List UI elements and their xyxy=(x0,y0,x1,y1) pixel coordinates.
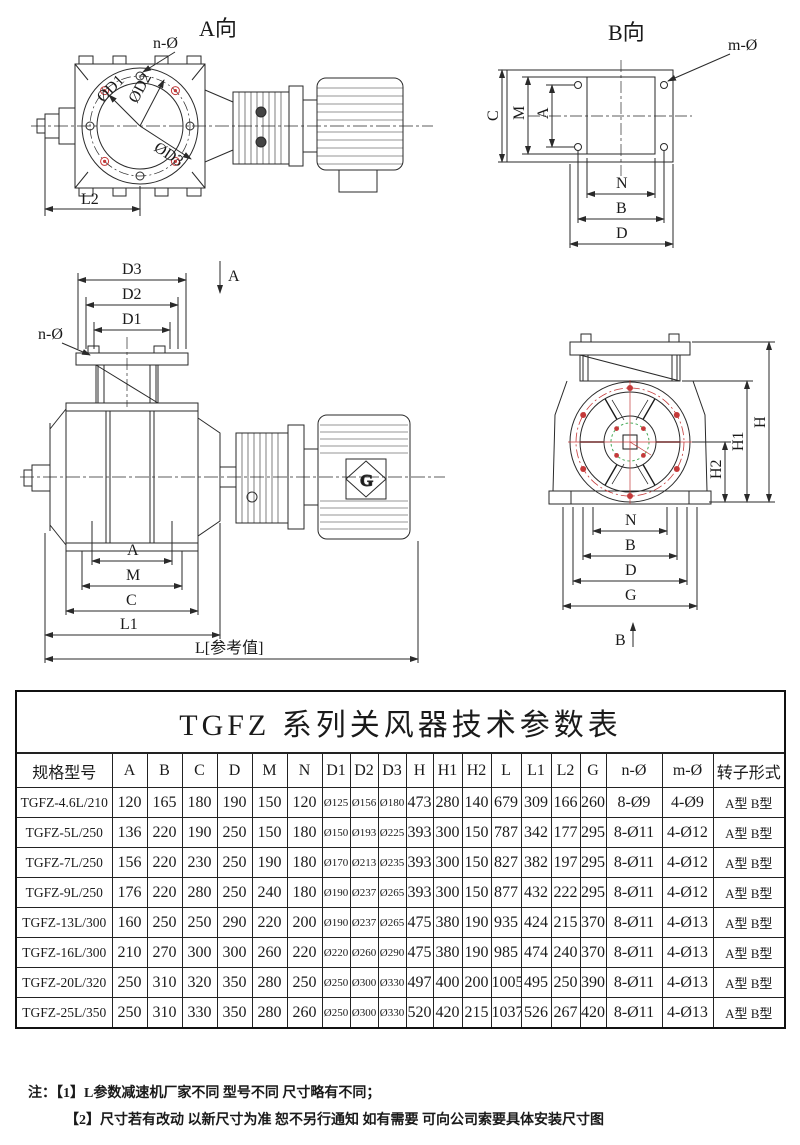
value-cell: 300 xyxy=(217,938,252,968)
table-row: TGFZ-20L/320250310320350280250Ø250Ø300Ø3… xyxy=(17,968,784,998)
parameter-table: TGFZ 系列关风器技术参数表 规格型号ABCDMND1D2D3HH1H2LL1… xyxy=(15,690,786,1029)
value-cell: 495 xyxy=(521,968,551,998)
value-cell: 230 xyxy=(182,848,217,878)
value-cell: 250 xyxy=(112,968,147,998)
dim-od1-label: ØD1 xyxy=(94,72,128,106)
value-cell: 475 xyxy=(406,938,433,968)
dim-l2-label: L2 xyxy=(81,191,99,208)
column-header: m-Ø xyxy=(662,754,713,788)
view-a-drawing: ØD1 ØD2 ØD3 n-Ø L2 A向 xyxy=(25,8,440,248)
column-header: B xyxy=(147,754,182,788)
dim-m-label-front: M xyxy=(126,567,140,584)
value-cell: 787 xyxy=(491,818,521,848)
value-cell: 8-Ø11 xyxy=(606,908,662,938)
front-view-drawing: A D3 D2 D1 n-Ø xyxy=(20,253,450,663)
value-cell: 4-Ø13 xyxy=(662,968,713,998)
n-hole-callout-front: n-Ø xyxy=(38,326,90,355)
value-cell: Ø235 xyxy=(378,848,406,878)
section-arrow-a: A xyxy=(220,261,240,293)
value-cell: Ø225 xyxy=(378,818,406,848)
value-cell: 220 xyxy=(287,938,322,968)
note-prefix: 注： xyxy=(28,1086,56,1101)
column-header: 规格型号 xyxy=(17,754,112,788)
value-cell: 240 xyxy=(252,878,287,908)
dim-l-label: L[参考值] xyxy=(195,639,263,657)
value-cell: A型 B型 xyxy=(713,788,784,818)
value-cell: 250 xyxy=(217,878,252,908)
value-cell: Ø190 xyxy=(322,908,350,938)
value-cell: A型 B型 xyxy=(713,878,784,908)
dimension-h: H xyxy=(692,342,775,502)
value-cell: 165 xyxy=(147,788,182,818)
dim-h1-label: H1 xyxy=(730,431,747,451)
value-cell: 350 xyxy=(217,968,252,998)
value-cell: Ø300 xyxy=(350,968,378,998)
value-cell: Ø330 xyxy=(378,998,406,1028)
n-hole-callout: n-Ø xyxy=(143,35,178,72)
value-cell: 150 xyxy=(252,788,287,818)
value-cell: 300 xyxy=(182,938,217,968)
dim-m-label: M xyxy=(511,106,528,120)
value-cell: 180 xyxy=(287,818,322,848)
column-header: C xyxy=(182,754,217,788)
value-cell: 8-Ø11 xyxy=(606,998,662,1028)
value-cell: 342 xyxy=(521,818,551,848)
parameter-grid: 规格型号ABCDMND1D2D3HH1H2LL1L2Gn-Øm-Ø转子形式 TG… xyxy=(17,753,784,1027)
value-cell: 220 xyxy=(147,878,182,908)
column-header: H2 xyxy=(462,754,491,788)
value-cell: 190 xyxy=(182,818,217,848)
column-header: H1 xyxy=(433,754,462,788)
value-cell: 985 xyxy=(491,938,521,968)
value-cell: Ø250 xyxy=(322,998,350,1028)
value-cell: Ø180 xyxy=(378,788,406,818)
dim-h-label: H xyxy=(752,416,769,428)
value-cell: Ø330 xyxy=(378,968,406,998)
value-cell: 177 xyxy=(551,818,580,848)
notes-block: 注：【1】L参数减速机厂家不同 型号不同 尺寸略有不同； 【2】尺寸若有改动 以… xyxy=(28,1080,768,1134)
note-line-2: 【2】尺寸若有改动 以新尺寸为准 恕不另行通知 如有需要 可向公司索要具体安装尺… xyxy=(28,1107,768,1134)
column-header: L2 xyxy=(551,754,580,788)
value-cell: A型 B型 xyxy=(713,938,784,968)
table-row: TGFZ-4.6L/210120165180190150120Ø125Ø156Ø… xyxy=(17,788,784,818)
value-cell: 140 xyxy=(462,788,491,818)
value-cell: 150 xyxy=(252,818,287,848)
value-cell: 180 xyxy=(287,848,322,878)
value-cell: 180 xyxy=(182,788,217,818)
column-header: L1 xyxy=(521,754,551,788)
value-cell: Ø213 xyxy=(350,848,378,878)
dim-l1-label: L1 xyxy=(120,616,138,633)
value-cell: 250 xyxy=(182,908,217,938)
value-cell: 520 xyxy=(406,998,433,1028)
value-cell: 300 xyxy=(433,818,462,848)
value-cell: 370 xyxy=(580,908,606,938)
rotor-face xyxy=(568,380,692,504)
value-cell: 300 xyxy=(433,878,462,908)
value-cell: 250 xyxy=(287,968,322,998)
n-hole-label: n-Ø xyxy=(153,35,178,52)
dim-od2-label: ØD2 xyxy=(126,70,156,105)
value-cell: A型 B型 xyxy=(713,998,784,1028)
value-cell: 290 xyxy=(217,908,252,938)
view-b-title: B向 xyxy=(608,20,645,45)
value-cell: Ø150 xyxy=(322,818,350,848)
value-cell: 320 xyxy=(182,968,217,998)
value-cell: 190 xyxy=(217,788,252,818)
dimension-l: L[参考值] xyxy=(45,541,418,663)
dim-n-label: N xyxy=(616,175,628,192)
value-cell: 200 xyxy=(287,908,322,938)
value-cell: 4-Ø12 xyxy=(662,818,713,848)
section-a-label: A xyxy=(228,268,240,285)
value-cell: 166 xyxy=(551,788,580,818)
dim-d3-label: D3 xyxy=(122,261,142,278)
value-cell: 1037 xyxy=(491,998,521,1028)
note-item-2: 【2】尺寸若有改动 以新尺寸为准 恕不另行通知 如有需要 可向公司索要具体安装尺… xyxy=(65,1113,604,1128)
table-title: TGFZ 系列关风器技术参数表 xyxy=(17,692,784,753)
value-cell: 4-Ø13 xyxy=(662,908,713,938)
column-header: D xyxy=(217,754,252,788)
value-cell: 390 xyxy=(580,968,606,998)
value-cell: 935 xyxy=(491,908,521,938)
dimension-c: C xyxy=(485,70,507,162)
column-header: n-Ø xyxy=(606,754,662,788)
value-cell: 280 xyxy=(252,998,287,1028)
value-cell: Ø300 xyxy=(350,998,378,1028)
value-cell: 350 xyxy=(217,998,252,1028)
value-cell: 250 xyxy=(217,818,252,848)
column-header: L xyxy=(491,754,521,788)
value-cell: Ø156 xyxy=(350,788,378,818)
value-cell: 267 xyxy=(551,998,580,1028)
value-cell: 250 xyxy=(217,848,252,878)
dim-a-label-front: A xyxy=(127,542,139,559)
column-header: N xyxy=(287,754,322,788)
note-item-1: 【1】L参数减速机厂家不同 型号不同 尺寸略有不同； xyxy=(56,1086,380,1101)
column-header: G xyxy=(580,754,606,788)
table-row: TGFZ-13L/300160250250290220200Ø190Ø237Ø2… xyxy=(17,908,784,938)
value-cell: 827 xyxy=(491,848,521,878)
view-a-title: A向 xyxy=(199,16,237,41)
value-cell: 382 xyxy=(521,848,551,878)
dim-b-label-end: B xyxy=(625,537,636,554)
value-cell: 432 xyxy=(521,878,551,908)
value-cell: Ø265 xyxy=(378,908,406,938)
value-cell: 8-Ø11 xyxy=(606,938,662,968)
value-cell: A型 B型 xyxy=(713,968,784,998)
dim-b-label: B xyxy=(616,200,627,217)
value-cell: 222 xyxy=(551,878,580,908)
value-cell: 190 xyxy=(462,938,491,968)
value-cell: 176 xyxy=(112,878,147,908)
value-cell: 393 xyxy=(406,878,433,908)
dim-h2-label: H2 xyxy=(708,459,725,479)
m-hole-label: m-Ø xyxy=(728,37,757,54)
value-cell: 215 xyxy=(462,998,491,1028)
column-header: 转子形式 xyxy=(713,754,784,788)
note-line-1: 注：【1】L参数减速机厂家不同 型号不同 尺寸略有不同； xyxy=(28,1080,768,1107)
dimension-l2: L2 xyxy=(45,138,140,216)
model-cell: TGFZ-20L/320 xyxy=(17,968,112,998)
model-cell: TGFZ-25L/350 xyxy=(17,998,112,1028)
value-cell: 330 xyxy=(182,998,217,1028)
front-shaft-stub xyxy=(24,465,50,491)
value-cell: 310 xyxy=(147,968,182,998)
value-cell: 260 xyxy=(580,788,606,818)
model-cell: TGFZ-13L/300 xyxy=(17,908,112,938)
value-cell: 4-Ø12 xyxy=(662,878,713,908)
value-cell: 295 xyxy=(580,848,606,878)
value-cell: 180 xyxy=(287,878,322,908)
value-cell: 1005 xyxy=(491,968,521,998)
value-cell: 260 xyxy=(252,938,287,968)
column-header: M xyxy=(252,754,287,788)
dim-d-label-end: D xyxy=(625,562,637,579)
value-cell: 400 xyxy=(433,968,462,998)
value-cell: 250 xyxy=(112,998,147,1028)
dim-g-label: G xyxy=(625,587,637,604)
value-cell: Ø190 xyxy=(322,878,350,908)
value-cell: 220 xyxy=(147,818,182,848)
value-cell: Ø237 xyxy=(350,878,378,908)
value-cell: 280 xyxy=(252,968,287,998)
value-cell: Ø260 xyxy=(350,938,378,968)
value-cell: 295 xyxy=(580,878,606,908)
value-cell: 160 xyxy=(112,908,147,938)
value-cell: 8-Ø9 xyxy=(606,788,662,818)
table-row: TGFZ-7L/250156220230250190180Ø170Ø213Ø23… xyxy=(17,848,784,878)
value-cell: 215 xyxy=(551,908,580,938)
table-row: TGFZ-25L/350250310330350280260Ø250Ø300Ø3… xyxy=(17,998,784,1028)
column-header: D1 xyxy=(322,754,350,788)
value-cell: 210 xyxy=(112,938,147,968)
value-cell: 150 xyxy=(462,878,491,908)
value-cell: 270 xyxy=(147,938,182,968)
model-cell: TGFZ-7L/250 xyxy=(17,848,112,878)
value-cell: 309 xyxy=(521,788,551,818)
value-cell: A型 B型 xyxy=(713,818,784,848)
model-cell: TGFZ-9L/250 xyxy=(17,878,112,908)
end-view-drawing: H2 H1 H N B D G B xyxy=(525,295,795,660)
value-cell: 4-Ø13 xyxy=(662,998,713,1028)
value-cell: 8-Ø11 xyxy=(606,968,662,998)
value-cell: 190 xyxy=(252,848,287,878)
inlet-flange xyxy=(76,346,188,403)
value-cell: 120 xyxy=(112,788,147,818)
dim-d-label: D xyxy=(616,225,628,242)
value-cell: 370 xyxy=(580,938,606,968)
value-cell: Ø250 xyxy=(322,968,350,998)
motor-logo: G xyxy=(360,471,373,490)
value-cell: 4-Ø9 xyxy=(662,788,713,818)
value-cell: 295 xyxy=(580,818,606,848)
value-cell: 200 xyxy=(462,968,491,998)
value-cell: 190 xyxy=(462,908,491,938)
value-cell: Ø237 xyxy=(350,908,378,938)
value-cell: 473 xyxy=(406,788,433,818)
m-hole-callout: m-Ø xyxy=(668,37,757,81)
dim-a-label: A xyxy=(535,107,552,119)
value-cell: 380 xyxy=(433,938,462,968)
dimension-n-end: N xyxy=(593,507,667,535)
value-cell: Ø125 xyxy=(322,788,350,818)
value-cell: 877 xyxy=(491,878,521,908)
gearmotor xyxy=(205,78,403,192)
value-cell: 8-Ø11 xyxy=(606,818,662,848)
model-cell: TGFZ-16L/300 xyxy=(17,938,112,968)
dimension-n: N xyxy=(587,158,655,198)
value-cell: 424 xyxy=(521,908,551,938)
value-cell: 474 xyxy=(521,938,551,968)
n-hole-label-front: n-Ø xyxy=(38,326,63,343)
datasheet-page: { "colors": { "line": "#2a2a2a", "accent… xyxy=(0,0,800,1145)
view-b-drawing: m-Ø C M A N B D B向 xyxy=(440,8,795,258)
value-cell: A型 B型 xyxy=(713,848,784,878)
value-cell: 156 xyxy=(112,848,147,878)
table-row: TGFZ-16L/300210270300300260220Ø220Ø260Ø2… xyxy=(17,938,784,968)
value-cell: 4-Ø13 xyxy=(662,938,713,968)
value-cell: 393 xyxy=(406,818,433,848)
column-header: D2 xyxy=(350,754,378,788)
table-row: TGFZ-9L/250176220280250240180Ø190Ø237Ø26… xyxy=(17,878,784,908)
column-header: A xyxy=(112,754,147,788)
dim-c-label-front: C xyxy=(126,592,137,609)
value-cell: 300 xyxy=(433,848,462,878)
dim-c-label: C xyxy=(485,110,502,121)
value-cell: Ø170 xyxy=(322,848,350,878)
value-cell: Ø193 xyxy=(350,818,378,848)
value-cell: 220 xyxy=(252,908,287,938)
value-cell: 280 xyxy=(433,788,462,818)
section-b-label: B xyxy=(615,632,626,649)
dim-n-label-end: N xyxy=(625,512,637,529)
table-row: TGFZ-5L/250136220190250150180Ø150Ø193Ø22… xyxy=(17,818,784,848)
value-cell: Ø265 xyxy=(378,878,406,908)
value-cell: 260 xyxy=(287,998,322,1028)
value-cell: 120 xyxy=(287,788,322,818)
value-cell: Ø220 xyxy=(322,938,350,968)
value-cell: 240 xyxy=(551,938,580,968)
value-cell: 8-Ø11 xyxy=(606,848,662,878)
end-inlet-flange xyxy=(570,334,690,381)
value-cell: 197 xyxy=(551,848,580,878)
value-cell: A型 B型 xyxy=(713,908,784,938)
section-arrow-b: B xyxy=(615,623,633,649)
value-cell: 420 xyxy=(580,998,606,1028)
column-header: H xyxy=(406,754,433,788)
value-cell: 380 xyxy=(433,908,462,938)
value-cell: 250 xyxy=(147,908,182,938)
value-cell: 4-Ø12 xyxy=(662,848,713,878)
value-cell: 280 xyxy=(182,878,217,908)
value-cell: 250 xyxy=(551,968,580,998)
value-cell: 150 xyxy=(462,818,491,848)
dim-d1-label: D1 xyxy=(122,311,142,328)
value-cell: 475 xyxy=(406,908,433,938)
value-cell: 497 xyxy=(406,968,433,998)
value-cell: 420 xyxy=(433,998,462,1028)
value-cell: 220 xyxy=(147,848,182,878)
value-cell: 393 xyxy=(406,848,433,878)
dim-d2-label: D2 xyxy=(122,286,142,303)
value-cell: 310 xyxy=(147,998,182,1028)
header-row: 规格型号ABCDMND1D2D3HH1H2LL1L2Gn-Øm-Ø转子形式 xyxy=(17,754,784,788)
value-cell: 526 xyxy=(521,998,551,1028)
value-cell: Ø290 xyxy=(378,938,406,968)
value-cell: 8-Ø11 xyxy=(606,878,662,908)
value-cell: 679 xyxy=(491,788,521,818)
model-cell: TGFZ-5L/250 xyxy=(17,818,112,848)
dimension-a-front: A xyxy=(92,517,172,565)
column-header: D3 xyxy=(378,754,406,788)
value-cell: 136 xyxy=(112,818,147,848)
value-cell: 150 xyxy=(462,848,491,878)
model-cell: TGFZ-4.6L/210 xyxy=(17,788,112,818)
dimension-d1: D1 xyxy=(94,311,170,349)
